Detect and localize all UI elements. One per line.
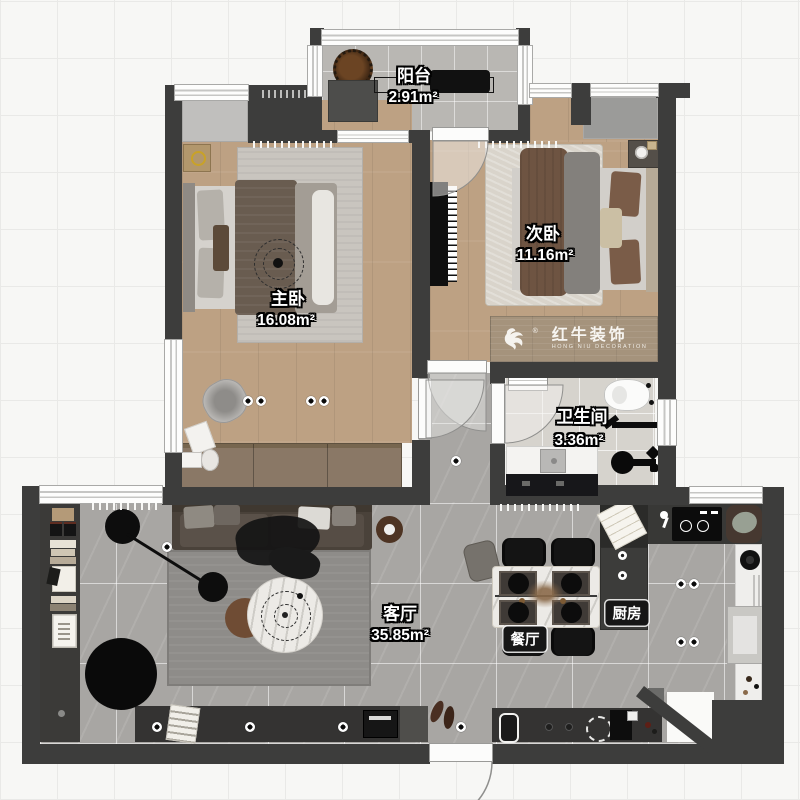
bath-left-wall-stub-top	[490, 375, 505, 384]
dining-label: 餐厅	[504, 627, 547, 652]
master-lamp	[191, 151, 206, 166]
entry-floor-dot	[456, 722, 466, 732]
secondary-label: 次卧	[526, 220, 560, 245]
balcony-area-label: 2.91m²	[388, 89, 437, 107]
arc-lamp-base	[198, 572, 228, 602]
living-curtain-ticks	[92, 503, 162, 510]
secondary-curtain-ticks	[478, 141, 562, 148]
spotlight	[243, 396, 253, 406]
kitchen-window	[690, 487, 762, 503]
counter-deco	[754, 684, 759, 689]
bath-left-wall-stub-bottom	[490, 444, 505, 488]
fridge-panel	[733, 616, 757, 654]
master-bed-headboard	[183, 183, 195, 312]
shelf-book	[50, 604, 76, 611]
spotlight	[256, 396, 266, 406]
plate	[561, 602, 582, 623]
floor-drain	[611, 451, 634, 474]
kitchen-spotlight	[676, 637, 686, 647]
spotlight	[162, 542, 172, 552]
drying-rack-bar	[430, 70, 490, 93]
spotlight	[319, 396, 329, 406]
balcony-door	[433, 128, 488, 140]
sofa-pillow	[214, 505, 240, 525]
master-blanket-white	[312, 190, 334, 305]
kitchen-spotlight	[676, 579, 686, 589]
table-centerpiece	[526, 580, 564, 608]
shelf-book	[50, 557, 76, 564]
master-bay-platform	[182, 100, 248, 142]
shelf-book	[51, 549, 75, 556]
counter-dash	[711, 511, 718, 514]
coffee-table-center	[282, 612, 288, 618]
entry-deco-red	[645, 722, 651, 728]
brand-text: 红牛装饰 HONG NIU DECORATION	[552, 328, 648, 351]
piano-body	[430, 182, 448, 286]
shower-divider	[612, 422, 658, 428]
dining-chair	[505, 538, 543, 568]
art-print-sketch	[58, 622, 70, 640]
registered-mark: ®	[533, 328, 538, 335]
plate	[561, 573, 582, 594]
bathroom-area-label: 3.36m²	[554, 432, 603, 450]
washing-machine	[586, 716, 612, 742]
entry-cabinet-basin	[499, 713, 519, 743]
dining-chair	[554, 626, 592, 656]
dining-curtain-ticks	[500, 504, 580, 511]
spotlight	[306, 396, 316, 406]
stove-burner	[680, 520, 692, 532]
kitchen-label: 厨房	[606, 601, 649, 626]
bin-handle	[627, 711, 638, 721]
bedroom-block-bottom-wall	[162, 487, 418, 505]
island-knob	[618, 571, 627, 580]
toilet	[604, 379, 650, 411]
sofa-pillow	[332, 506, 356, 526]
wall-secondary-bathroom	[490, 362, 676, 378]
shelf-frame	[50, 522, 62, 536]
cabinet-dot	[545, 723, 553, 731]
secondary-blanket-gray	[564, 152, 600, 294]
bathroom-door	[492, 384, 504, 443]
secondary-top-window-a	[530, 84, 571, 97]
kettle	[740, 550, 760, 570]
dining-chair	[554, 538, 592, 568]
right-wall-upper	[658, 96, 676, 400]
tv-device-slot	[369, 716, 391, 720]
balcony-wall-right-lower	[518, 104, 530, 132]
cabinet-knob	[245, 722, 255, 732]
vanity-cabinet	[506, 474, 598, 496]
island-knob	[618, 551, 627, 560]
master-label: 主卧	[271, 285, 305, 310]
vanity-handle	[556, 481, 564, 486]
secondary-top-post	[571, 83, 591, 125]
secondary-top-window-b	[591, 84, 658, 96]
master-top-window	[175, 85, 248, 100]
living-area-label: 35.85m²	[371, 627, 429, 645]
bottom-right-corner-wall	[712, 700, 784, 764]
radiator-hatch	[262, 90, 308, 98]
shelf-box	[52, 508, 74, 521]
entry-door	[430, 744, 492, 761]
bathroom-label: 卫生间	[557, 403, 608, 428]
balcony-window-top	[322, 30, 518, 45]
counter-dash	[700, 511, 707, 514]
entry-deco-dark	[652, 729, 657, 734]
master-bedroom-door	[419, 379, 431, 438]
shower-valve	[650, 464, 658, 472]
secondary-lumbar-pillow	[600, 208, 622, 248]
shelf-book	[51, 596, 76, 603]
counter-deco	[743, 690, 748, 695]
living-label: 客厅	[383, 600, 417, 625]
side-table-cup	[384, 524, 395, 535]
counter-deco	[746, 676, 752, 682]
shelf-dot	[58, 710, 65, 717]
sink-drain	[551, 458, 557, 464]
spotlight	[451, 456, 461, 466]
vanity-handle	[522, 481, 530, 486]
toilet-seat	[612, 386, 627, 404]
living-top-window	[40, 486, 162, 503]
cabinet-knob	[338, 722, 348, 732]
counter-rail	[753, 575, 755, 607]
secondary-bedroom-floor-door-strip	[430, 332, 490, 362]
master-lumbar-pillow	[213, 225, 229, 271]
bathroom-window	[658, 400, 676, 445]
shelf-book	[50, 540, 76, 548]
secondary-bed-headboard	[646, 166, 658, 292]
shelf-frame	[64, 522, 76, 536]
cabinet-knob	[152, 722, 162, 732]
master-balcony-window	[338, 131, 408, 142]
stove-burner	[697, 520, 709, 532]
tv-cabinet-magazine	[166, 704, 201, 744]
brand-logo-board: ® 红牛装饰 HONG NIU DECORATION	[490, 316, 658, 362]
brand-name-en: HONG NIU DECORATION	[552, 344, 648, 350]
balcony-post-right	[516, 28, 530, 46]
cabinet-dot	[565, 723, 573, 731]
bottom-wall-left	[22, 744, 430, 764]
master-curtain-ticks	[253, 141, 333, 148]
balcony-cabinet	[328, 80, 378, 122]
kitchen-spotlight	[689, 637, 699, 647]
secondary-bedroom-door	[428, 361, 486, 373]
secondary-area-label: 11.16m²	[517, 247, 574, 265]
brand-name-cn: 红牛装饰	[552, 328, 648, 345]
master-left-window	[165, 340, 182, 452]
coffee-table-item	[297, 593, 303, 599]
ceiling-light-center	[273, 258, 283, 268]
balcony-window-left	[308, 46, 322, 96]
bean-bag	[85, 638, 157, 710]
piano-keys	[448, 186, 457, 282]
living-left-wall	[22, 486, 40, 764]
toilet-button	[646, 383, 651, 388]
toilet-button	[649, 400, 654, 405]
balcony-label: 阳台	[397, 62, 431, 87]
bull-logo-icon	[501, 326, 531, 352]
tv-device	[363, 710, 398, 738]
floor-plan-canvas: ® 红牛装饰 HONG NIU DECORATION	[0, 0, 800, 800]
secondary-books	[647, 141, 657, 150]
wall-between-bedrooms	[412, 130, 430, 378]
sofa-pillow	[183, 505, 214, 529]
kitchen-spotlight	[689, 579, 699, 589]
counter-rail	[758, 575, 760, 607]
master-area-label: 16.08m²	[257, 312, 315, 330]
master-desk-chair	[201, 449, 219, 471]
master-left-wall-upper	[165, 85, 182, 340]
secondary-bay-platform	[583, 97, 658, 139]
towel-rack	[509, 377, 547, 390]
shoe-cabinet	[400, 706, 428, 742]
